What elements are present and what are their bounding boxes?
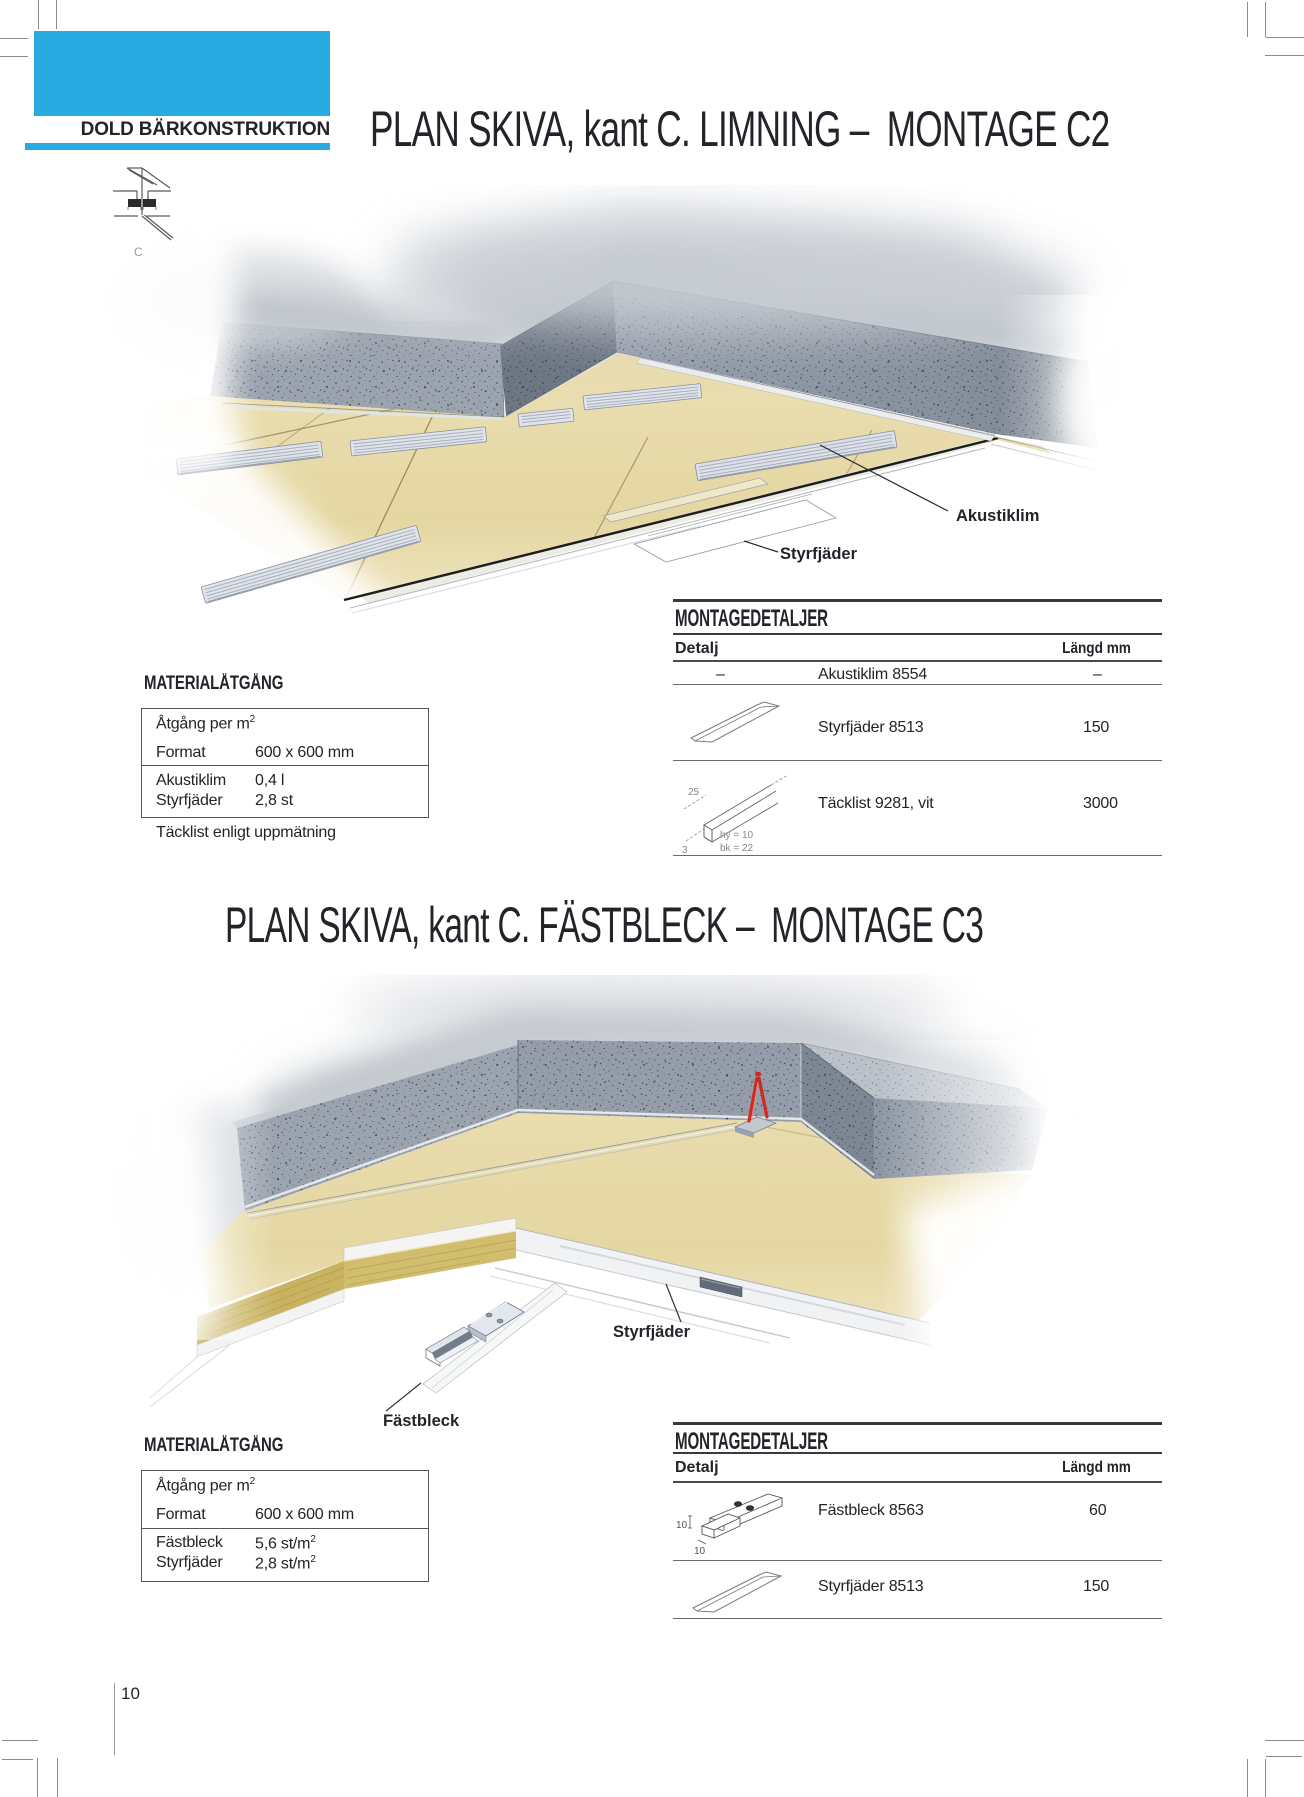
svg-text:bk = 22: bk = 22 [720,843,754,854]
svg-text:3: 3 [682,845,688,855]
svg-text:10: 10 [676,1520,688,1531]
svg-text:25: 25 [688,787,700,798]
svg-text:C: C [134,245,143,259]
svg-text:hy = 10: hy = 10 [720,830,754,841]
svg-text:10: 10 [694,1546,706,1557]
